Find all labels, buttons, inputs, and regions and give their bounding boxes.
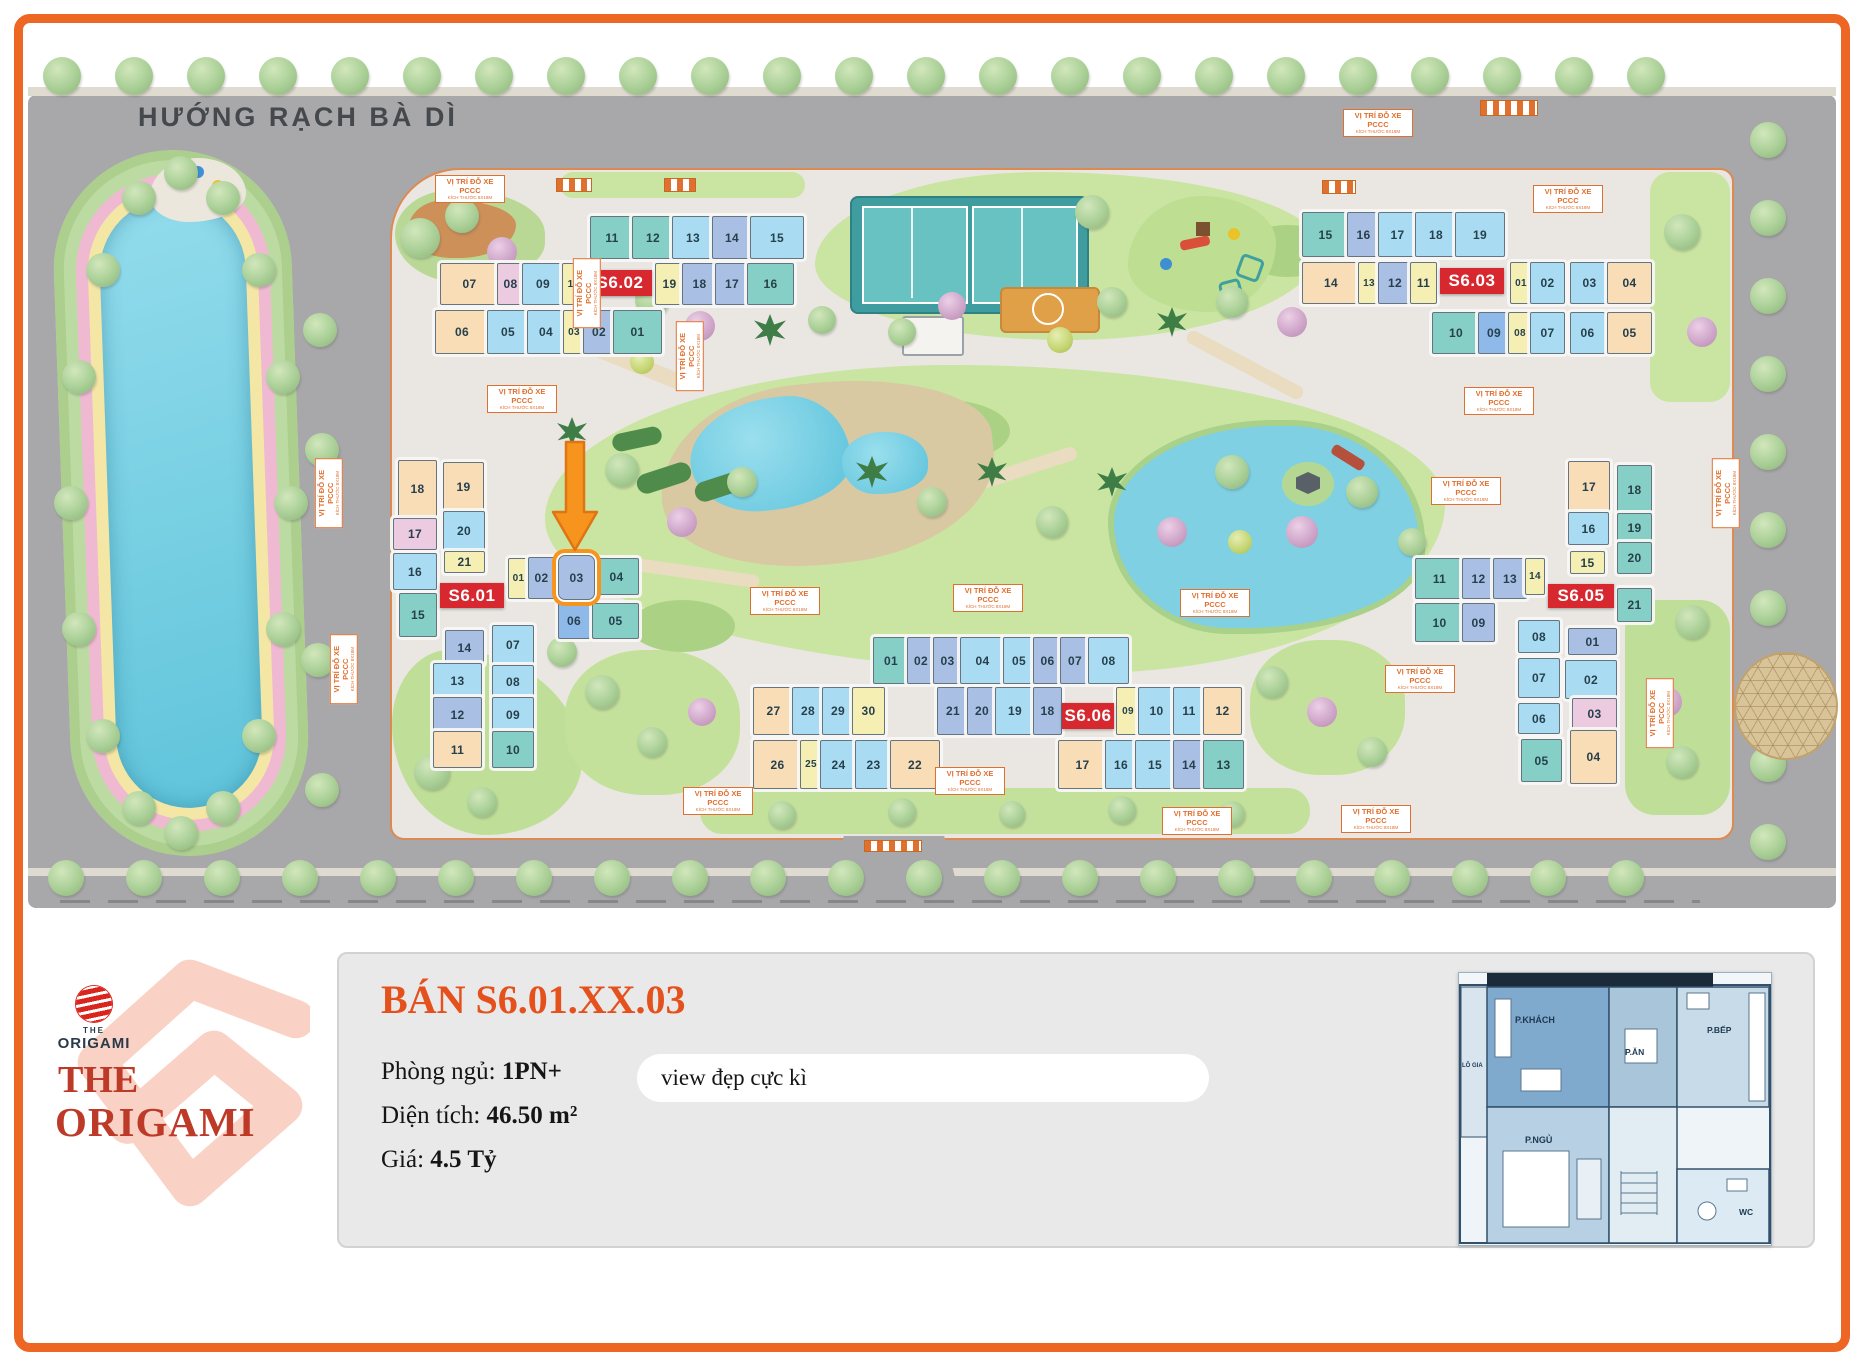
unit-cell[interactable]: 14 bbox=[445, 630, 484, 665]
tree-icon bbox=[206, 181, 240, 215]
unit-cell[interactable]: 15 bbox=[750, 216, 804, 259]
road-direction-label: HƯỚNG RẠCH BÀ DÌ bbox=[138, 102, 458, 133]
tree-icon bbox=[1750, 200, 1786, 236]
unit-cell[interactable]: 04 bbox=[1570, 730, 1617, 784]
unit-cell[interactable]: 15 bbox=[1570, 551, 1605, 574]
unit-cell[interactable]: 29 bbox=[822, 687, 854, 735]
tree-icon bbox=[266, 612, 300, 646]
tree-icon bbox=[1228, 530, 1252, 554]
unit-cell[interactable]: 16 bbox=[1105, 740, 1137, 789]
unit-cell[interactable]: 19 bbox=[655, 263, 684, 305]
unit-cell[interactable]: 07 bbox=[1518, 658, 1560, 698]
unit-cell[interactable]: 11 bbox=[1410, 262, 1437, 304]
unit-cell[interactable]: 07 bbox=[492, 625, 534, 665]
unit-cell[interactable]: 18 bbox=[682, 263, 717, 305]
speed-bump bbox=[556, 178, 592, 192]
floorplan-thumbnail: P.KHÁCH P.ĂN P.BẾP LÔ GIA P.NGỦ WC bbox=[1458, 972, 1772, 1246]
unit-cell[interactable]: 02 bbox=[907, 637, 935, 684]
price-value: 4.5 Tỷ bbox=[430, 1146, 496, 1173]
unit-cell[interactable]: 06 bbox=[435, 310, 489, 354]
lake-park-water bbox=[97, 196, 264, 811]
unit-cell[interactable]: 08 bbox=[1088, 637, 1129, 684]
speed-bump bbox=[1322, 180, 1356, 194]
svg-text:P.KHÁCH: P.KHÁCH bbox=[1515, 1015, 1555, 1025]
unit-cell[interactable]: 11 bbox=[1415, 558, 1464, 599]
tree-icon bbox=[727, 467, 757, 497]
fire-parking-label: VỊ TRÍ ĐỖ XE PCCCKÍCH THƯỚC 8X18M bbox=[315, 458, 343, 528]
unit-cell[interactable]: 15 bbox=[1135, 740, 1175, 789]
tree-icon bbox=[835, 57, 873, 95]
tree-icon bbox=[1555, 57, 1593, 95]
unit-cell[interactable]: 05 bbox=[1521, 739, 1562, 782]
shrub-area bbox=[630, 600, 735, 652]
origami-masterplan-page: HƯỚNG RẠCH BÀ DÌ 18191720162115010203040… bbox=[0, 0, 1864, 1366]
tree-icon bbox=[86, 253, 120, 287]
lawn-left-of-s606 bbox=[565, 650, 740, 795]
unit-cell[interactable]: 16 bbox=[1568, 512, 1609, 545]
unit-cell[interactable]: 01 bbox=[1510, 262, 1532, 304]
basketball-circle bbox=[1032, 293, 1064, 325]
note-input[interactable] bbox=[637, 1054, 1209, 1102]
flowering-tree-icon bbox=[1687, 317, 1717, 347]
tree-icon bbox=[1750, 278, 1786, 314]
listing-title: BÁN S6.01.XX.03 bbox=[381, 976, 685, 1023]
building-badge: S6.06 bbox=[1062, 703, 1114, 729]
tree-icon bbox=[122, 181, 156, 215]
unit-cell[interactable]: 09 bbox=[1462, 603, 1495, 642]
tree-icon bbox=[984, 860, 1020, 896]
tree-icon bbox=[547, 637, 577, 667]
svg-text:LÔ GIA: LÔ GIA bbox=[1462, 1061, 1483, 1069]
tree-icon bbox=[1062, 860, 1098, 896]
fire-parking-label: VỊ TRÍ ĐỖ XE PCCCKÍCH THƯỚC 8X18M bbox=[1646, 678, 1674, 748]
tree-icon bbox=[43, 57, 81, 95]
unit-cell[interactable]: 15 bbox=[399, 593, 437, 637]
tree-icon bbox=[122, 791, 156, 825]
unit-cell[interactable]: 07 bbox=[1530, 312, 1565, 354]
tree-icon bbox=[619, 57, 657, 95]
fire-parking-label: VỊ TRÍ ĐỖ XE PCCCKÍCH THƯỚC 8X18M bbox=[435, 175, 505, 203]
unit-cell[interactable]: 08 bbox=[497, 263, 524, 305]
building-badge: S6.03 bbox=[1440, 268, 1504, 294]
unit-cell[interactable]: 18 bbox=[1617, 465, 1652, 514]
tree-icon bbox=[979, 57, 1017, 95]
unit-cell[interactable]: 12 bbox=[1462, 558, 1495, 599]
central-lake bbox=[1108, 420, 1425, 634]
unit-cell[interactable]: 09 bbox=[1478, 312, 1510, 354]
origami-logo-icon bbox=[76, 986, 112, 1022]
tree-icon bbox=[1047, 327, 1073, 353]
tree-icon bbox=[1267, 57, 1305, 95]
unit-cell[interactable]: 14 bbox=[712, 216, 752, 259]
unit-cell[interactable]: 11 bbox=[590, 216, 634, 259]
unit-cell-selected[interactable]: 03 bbox=[558, 555, 595, 600]
unit-cell[interactable]: 28 bbox=[792, 687, 824, 735]
tree-icon bbox=[763, 57, 801, 95]
unit-cell[interactable]: 24 bbox=[820, 740, 857, 789]
tree-icon bbox=[1750, 434, 1786, 470]
unit-cell[interactable]: 07 bbox=[440, 263, 499, 305]
speed-bump bbox=[864, 840, 922, 852]
speed-bump bbox=[1480, 100, 1538, 116]
tree-icon bbox=[1140, 860, 1176, 896]
tree-icon bbox=[1411, 57, 1449, 95]
brand-the-text: THE bbox=[58, 1058, 138, 1102]
unit-cell[interactable]: 04 bbox=[594, 558, 639, 595]
unit-cell[interactable]: 10 bbox=[1432, 312, 1480, 354]
unit-cell[interactable]: 11 bbox=[1173, 687, 1205, 735]
bedrooms-value: 1PN+ bbox=[502, 1058, 562, 1085]
tree-icon bbox=[1218, 860, 1254, 896]
fire-parking-label: VỊ TRÍ ĐỖ XE PCCCKÍCH THƯỚC 8X18M bbox=[1385, 665, 1455, 693]
fire-parking-label: VỊ TRÍ ĐỖ XE PCCCKÍCH THƯỚC 8X18M bbox=[750, 587, 820, 615]
unit-cell[interactable]: 09 bbox=[1116, 687, 1140, 735]
tree-icon bbox=[445, 199, 479, 233]
tennis-net-line bbox=[1021, 208, 1023, 298]
tree-icon bbox=[62, 360, 96, 394]
tree-icon bbox=[1051, 57, 1089, 95]
flowering-tree-icon bbox=[1157, 517, 1187, 547]
tree-icon bbox=[204, 860, 240, 896]
tree-icon bbox=[164, 816, 198, 850]
tree-icon bbox=[907, 57, 945, 95]
svg-text:P.NGỦ: P.NGỦ bbox=[1525, 1134, 1552, 1145]
unit-cell[interactable]: 20 bbox=[443, 511, 485, 550]
selected-unit-marker bbox=[545, 436, 605, 554]
unit-cell[interactable]: 26 bbox=[753, 740, 802, 789]
area-value: 46.50 m² bbox=[487, 1102, 578, 1129]
unit-cell[interactable]: 17 bbox=[715, 263, 749, 305]
tree-icon bbox=[1627, 57, 1665, 95]
tree-icon bbox=[888, 798, 916, 826]
tennis-net-line bbox=[911, 208, 913, 298]
unit-cell[interactable]: 04 bbox=[527, 310, 565, 354]
unit-cell[interactable]: 21 bbox=[937, 687, 969, 735]
tree-icon bbox=[808, 306, 836, 334]
flowering-tree-icon bbox=[688, 698, 716, 726]
unit-cell[interactable]: 12 bbox=[1378, 262, 1412, 304]
tennis-court-surface bbox=[862, 206, 968, 304]
tree-icon bbox=[1346, 476, 1378, 508]
unit-cell[interactable]: 13 bbox=[1358, 262, 1380, 304]
flowering-tree-icon bbox=[1307, 697, 1337, 727]
tree-icon bbox=[1452, 860, 1488, 896]
tree-icon bbox=[467, 787, 497, 817]
unit-cell[interactable]: 22 bbox=[890, 740, 940, 789]
tree-icon bbox=[206, 791, 240, 825]
tree-icon bbox=[1666, 746, 1698, 778]
logo-the-label: THE bbox=[50, 1026, 138, 1035]
unit-cell[interactable]: 13 bbox=[1203, 740, 1244, 789]
fire-parking-label: VỊ TRÍ ĐỖ XE PCCCKÍCH THƯỚC 8X18M bbox=[330, 634, 358, 704]
tree-icon bbox=[547, 57, 585, 95]
unit-cell[interactable]: 09 bbox=[492, 697, 534, 733]
tree-icon bbox=[360, 860, 396, 896]
unit-cell[interactable]: 20 bbox=[967, 687, 997, 735]
tree-icon bbox=[1483, 57, 1521, 95]
tree-icon bbox=[672, 860, 708, 896]
unit-cell[interactable]: 02 bbox=[1565, 660, 1617, 699]
unit-cell[interactable]: 18 bbox=[1415, 212, 1457, 257]
tree-icon bbox=[1215, 455, 1249, 489]
building-badge: S6.01 bbox=[440, 583, 504, 608]
unit-cell[interactable]: 18 bbox=[398, 460, 437, 517]
fire-parking-label: VỊ TRÍ ĐỖ XE PCCCKÍCH THƯỚC 8X18M bbox=[1341, 805, 1411, 833]
tree-icon bbox=[438, 860, 474, 896]
flowering-tree-icon bbox=[667, 507, 697, 537]
unit-cell[interactable]: 02 bbox=[528, 557, 555, 599]
flowering-tree-icon bbox=[938, 292, 966, 320]
unit-cell[interactable]: 13 bbox=[433, 663, 482, 699]
unit-cell[interactable]: 10 bbox=[1138, 687, 1175, 735]
tree-icon bbox=[242, 253, 276, 287]
tree-icon bbox=[1750, 824, 1786, 860]
unit-cell[interactable]: 14 bbox=[1525, 558, 1545, 595]
unit-cell[interactable]: 05 bbox=[1003, 637, 1035, 684]
logo-name-label: ORIGAMI bbox=[50, 1035, 138, 1052]
unit-cell[interactable]: 08 bbox=[1518, 620, 1560, 653]
unit-cell[interactable]: 05 bbox=[1607, 312, 1652, 354]
unit-cell[interactable]: 13 bbox=[1493, 558, 1527, 599]
unit-cell[interactable]: 03 bbox=[1570, 262, 1609, 304]
tree-icon bbox=[54, 486, 88, 520]
bedrooms-field: Phòng ngủ: 1PN+ bbox=[381, 1058, 562, 1086]
unit-cell[interactable]: 08 bbox=[1508, 312, 1532, 354]
unit-cell[interactable]: 30 bbox=[852, 687, 885, 735]
unit-cell[interactable]: 12 bbox=[632, 216, 674, 259]
tree-icon bbox=[906, 860, 942, 896]
playground-dot bbox=[1160, 258, 1172, 270]
fire-parking-label: VỊ TRÍ ĐỖ XE PCCCKÍCH THƯỚC 8X18M bbox=[1343, 109, 1413, 137]
unit-cell[interactable]: 17 bbox=[1058, 740, 1107, 789]
unit-cell[interactable]: 03 bbox=[1572, 698, 1617, 730]
flowering-tree-icon bbox=[1277, 307, 1307, 337]
bedrooms-label: Phòng ngủ: bbox=[381, 1058, 502, 1085]
fire-parking-label: VỊ TRÍ ĐỖ XE PCCCKÍCH THƯỚC 8X18M bbox=[683, 787, 753, 815]
fire-parking-label: VỊ TRÍ ĐỖ XE PCCCKÍCH THƯỚC 8X18M bbox=[487, 385, 557, 413]
lawn-right-top bbox=[1650, 172, 1730, 402]
unit-cell[interactable]: 12 bbox=[1203, 687, 1242, 735]
kids-pool bbox=[842, 432, 928, 494]
fire-parking-label: VỊ TRÍ ĐỖ XE PCCCKÍCH THƯỚC 8X18M bbox=[953, 584, 1023, 612]
tree-icon bbox=[917, 487, 947, 517]
unit-cell[interactable]: 06 bbox=[1518, 703, 1560, 734]
fire-parking-label: VỊ TRÍ ĐỖ XE PCCCKÍCH THƯỚC 8X18M bbox=[573, 258, 601, 328]
price-label: Giá: bbox=[381, 1146, 430, 1173]
fire-parking-label: VỊ TRÍ ĐỖ XE PCCCKÍCH THƯỚC 8X18M bbox=[1431, 477, 1501, 505]
unit-cell[interactable]: 16 bbox=[393, 553, 437, 590]
unit-cell[interactable]: 21 bbox=[444, 551, 485, 573]
tree-icon bbox=[1123, 57, 1161, 95]
tree-icon bbox=[164, 156, 198, 190]
tree-icon bbox=[1216, 286, 1248, 318]
unit-cell[interactable]: 03 bbox=[933, 637, 962, 684]
unit-cell[interactable]: 06 bbox=[558, 603, 590, 639]
unit-cell[interactable]: 27 bbox=[753, 687, 794, 735]
unit-cell[interactable]: 21 bbox=[1617, 588, 1652, 622]
unit-cell[interactable]: 17 bbox=[1568, 461, 1610, 513]
svg-text:WC: WC bbox=[1739, 1207, 1753, 1217]
tree-icon bbox=[1374, 860, 1410, 896]
unit-cell[interactable]: 23 bbox=[855, 740, 892, 789]
tree-icon bbox=[331, 57, 369, 95]
tree-icon bbox=[999, 801, 1025, 827]
tree-icon bbox=[475, 57, 513, 95]
unit-cell[interactable]: 19 bbox=[443, 462, 484, 512]
unit-cell[interactable]: 10 bbox=[492, 731, 534, 768]
tree-icon bbox=[1036, 506, 1068, 538]
unit-cell[interactable]: 13 bbox=[672, 216, 714, 259]
tree-icon bbox=[1530, 860, 1566, 896]
unit-cell[interactable]: 10 bbox=[1415, 603, 1464, 642]
tree-icon bbox=[303, 313, 337, 347]
unit-cell[interactable]: 14 bbox=[1302, 262, 1360, 304]
tree-icon bbox=[1398, 528, 1426, 556]
unit-cell[interactable]: 04 bbox=[1607, 262, 1652, 304]
unit-cell[interactable]: 01 bbox=[1568, 628, 1617, 655]
svg-text:P.ĂN: P.ĂN bbox=[1625, 1047, 1644, 1057]
tree-icon bbox=[403, 57, 441, 95]
speed-bump bbox=[664, 178, 696, 192]
tree-icon bbox=[1608, 860, 1644, 896]
tree-icon bbox=[768, 801, 796, 829]
tree-icon bbox=[115, 57, 153, 95]
unit-cell[interactable]: 17 bbox=[1378, 212, 1417, 257]
unit-cell[interactable]: 20 bbox=[1617, 542, 1652, 574]
unit-cell[interactable]: 11 bbox=[433, 731, 482, 768]
tree-icon bbox=[266, 360, 300, 394]
unit-cell[interactable]: 06 bbox=[1570, 312, 1605, 354]
tree-icon bbox=[1357, 737, 1387, 767]
tree-icon bbox=[594, 860, 630, 896]
fire-parking-label: VỊ TRÍ ĐỖ XE PCCCKÍCH THƯỚC 8X18M bbox=[1180, 589, 1250, 617]
unit-cell[interactable]: 19 bbox=[1617, 513, 1652, 543]
unit-cell[interactable]: 17 bbox=[393, 518, 437, 550]
fire-parking-label: VỊ TRÍ ĐỖ XE PCCCKÍCH THƯỚC 8X18M bbox=[1464, 387, 1534, 415]
tree-icon bbox=[1108, 796, 1136, 824]
fire-parking-label: VỊ TRÍ ĐỖ XE PCCCKÍCH THƯỚC 8X18M bbox=[1533, 185, 1603, 213]
unit-cell[interactable]: 01 bbox=[508, 558, 529, 599]
tree-icon bbox=[1750, 356, 1786, 392]
unit-cell[interactable]: 08 bbox=[492, 665, 534, 699]
unit-cell[interactable]: 07 bbox=[1060, 637, 1090, 684]
tree-icon bbox=[242, 719, 276, 753]
tree-icon bbox=[1296, 860, 1332, 896]
unit-cell[interactable]: 18 bbox=[1033, 687, 1062, 735]
tree-icon bbox=[1195, 57, 1233, 95]
tree-icon bbox=[187, 57, 225, 95]
building-badge: S6.05 bbox=[1548, 584, 1614, 608]
tree-icon bbox=[1675, 605, 1709, 639]
unit-cell[interactable]: 16 bbox=[1347, 212, 1380, 257]
unit-cell[interactable]: 15 bbox=[1302, 212, 1349, 257]
tree-icon bbox=[259, 57, 297, 95]
unit-cell[interactable]: 05 bbox=[592, 603, 639, 639]
unit-cell[interactable]: 01 bbox=[873, 637, 909, 684]
tree-icon bbox=[1339, 57, 1377, 95]
unit-cell[interactable]: 09 bbox=[522, 263, 564, 305]
tree-icon bbox=[605, 453, 639, 487]
tree-icon bbox=[750, 860, 786, 896]
tree-icon bbox=[305, 773, 339, 807]
tree-icon bbox=[48, 860, 84, 896]
geodesic-dome bbox=[1734, 652, 1838, 760]
area-label: Diện tích: bbox=[381, 1102, 487, 1129]
tree-icon bbox=[400, 218, 440, 258]
unit-cell[interactable]: 19 bbox=[1455, 212, 1505, 257]
unit-cell[interactable]: 12 bbox=[433, 697, 482, 733]
tree-icon bbox=[1664, 214, 1700, 250]
tree-icon bbox=[282, 860, 318, 896]
tree-icon bbox=[126, 860, 162, 896]
price-field: Giá: 4.5 Tỷ bbox=[381, 1146, 497, 1174]
tree-icon bbox=[1750, 512, 1786, 548]
tree-icon bbox=[516, 860, 552, 896]
tree-icon bbox=[1750, 122, 1786, 158]
tree-icon bbox=[691, 57, 729, 95]
unit-cell[interactable]: 25 bbox=[800, 740, 822, 789]
fire-parking-label: VỊ TRÍ ĐỖ XE PCCCKÍCH THƯỚC 8X18M bbox=[935, 767, 1005, 795]
tree-icon bbox=[585, 675, 619, 709]
tree-icon bbox=[888, 318, 916, 346]
unit-cell[interactable]: 01 bbox=[613, 310, 662, 354]
parking-dashes bbox=[60, 900, 1700, 903]
unit-cell[interactable]: 04 bbox=[960, 637, 1005, 684]
tree-icon bbox=[828, 860, 864, 896]
unit-cell[interactable]: 06 bbox=[1033, 637, 1062, 684]
fire-parking-label: VỊ TRÍ ĐỖ XE PCCCKÍCH THƯỚC 8X18M bbox=[1712, 458, 1740, 528]
area-field: Diện tích: 46.50 m² bbox=[381, 1102, 577, 1130]
tree-icon bbox=[274, 486, 308, 520]
floorplan-image: P.KHÁCH P.ĂN P.BẾP LÔ GIA P.NGỦ WC bbox=[1459, 973, 1771, 1245]
unit-cell[interactable]: 05 bbox=[487, 310, 529, 354]
playground-dot bbox=[1228, 228, 1240, 240]
fire-parking-label: VỊ TRÍ ĐỖ XE PCCCKÍCH THƯỚC 8X18M bbox=[1162, 807, 1232, 835]
tree-icon bbox=[1750, 590, 1786, 626]
svg-text:P.BẾP: P.BẾP bbox=[1707, 1025, 1732, 1035]
unit-cell[interactable]: 14 bbox=[1173, 740, 1205, 789]
tree-icon bbox=[1075, 195, 1109, 229]
tree-icon bbox=[637, 727, 667, 757]
tree-icon bbox=[1256, 666, 1288, 698]
brand-name-text: ORIGAMI bbox=[55, 1098, 256, 1146]
unit-cell[interactable]: 16 bbox=[747, 263, 794, 305]
unit-cell[interactable]: 02 bbox=[1530, 262, 1565, 304]
unit-cell[interactable]: 19 bbox=[995, 687, 1035, 735]
fire-parking-label: VỊ TRÍ ĐỖ XE PCCCKÍCH THƯỚC 8X18M bbox=[676, 321, 704, 391]
flowering-tree-icon bbox=[1286, 516, 1318, 548]
tree-icon bbox=[1097, 287, 1127, 317]
playground-tower bbox=[1196, 222, 1210, 236]
